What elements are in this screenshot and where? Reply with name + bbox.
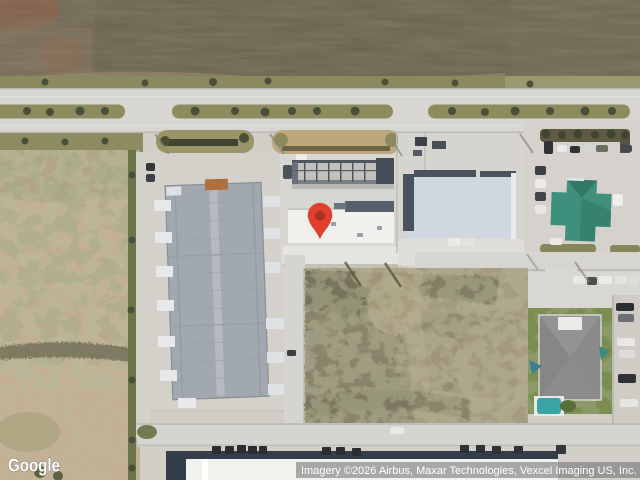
- svg-text:Imagery ©2026 Airbus, Maxar Te: Imagery ©2026 Airbus, Maxar Technologies…: [301, 465, 637, 477]
- svg-text:Google: Google: [8, 455, 60, 476]
